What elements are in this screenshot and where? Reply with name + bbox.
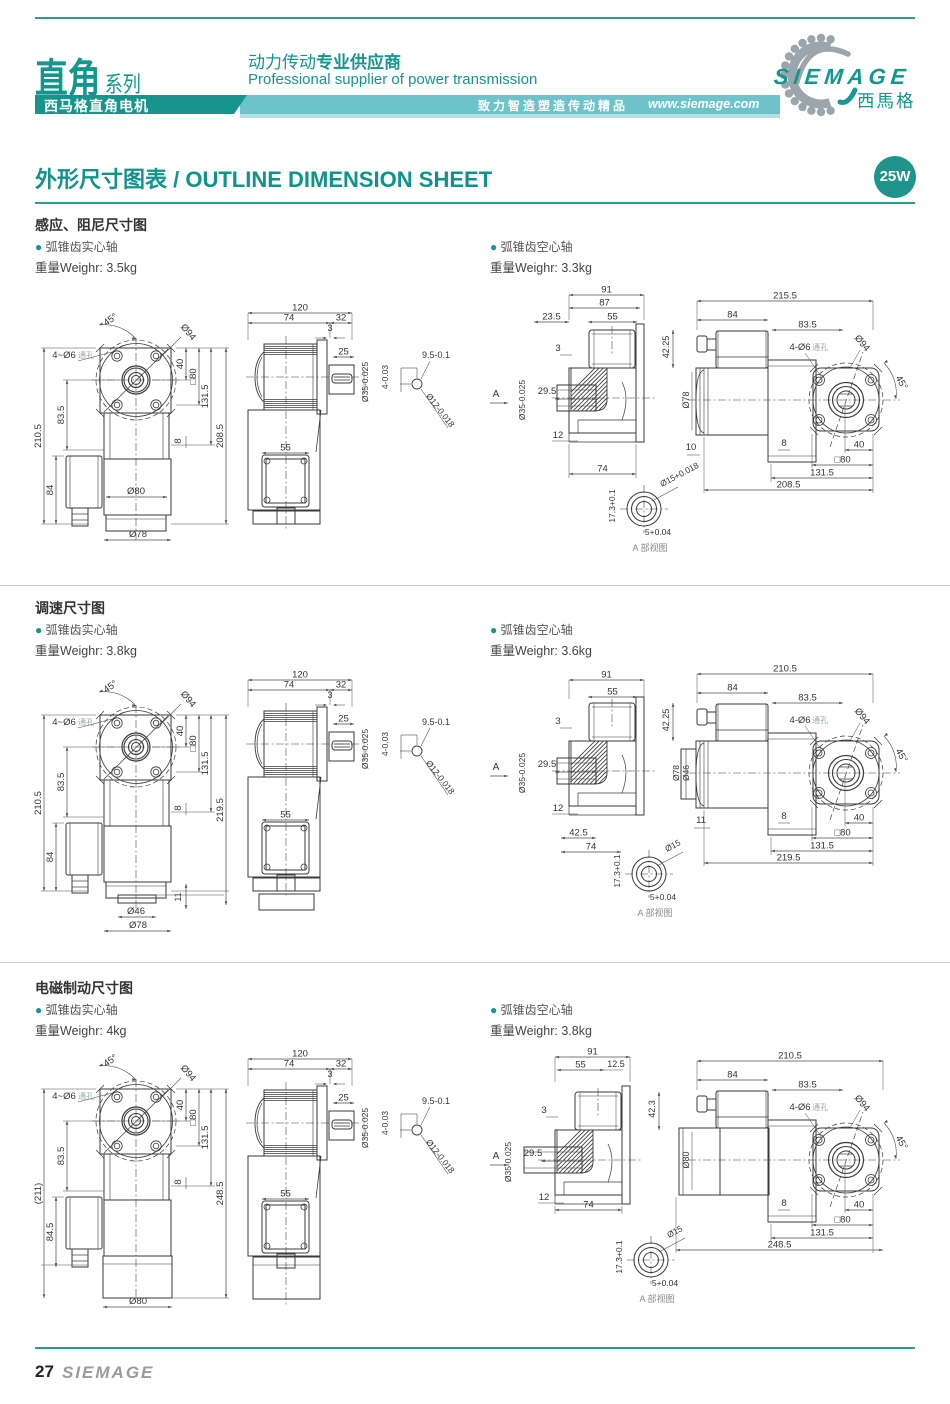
svg-text:8: 8 [173,438,184,443]
svg-text:Ø15+0.018: Ø15+0.018 [658,460,700,489]
svg-text:45°: 45° [893,1134,910,1152]
svg-text:4~Ø6: 4~Ø6 [52,1091,76,1102]
svg-text:Ø80: Ø80 [681,1151,691,1168]
svg-text:42.5: 42.5 [569,828,588,839]
svg-text:Ø35-0.025: Ø35-0.025 [517,753,527,793]
svg-text:5+0.04: 5+0.04 [645,527,672,537]
svg-text:83.5: 83.5 [798,1080,817,1091]
svg-text:55: 55 [607,312,618,323]
svg-text:Ø94: Ø94 [852,333,872,354]
svg-text:131.5: 131.5 [200,385,211,409]
svg-text:□80: □80 [834,828,850,839]
svg-text:通孔: 通孔 [78,350,94,360]
svg-text:83.5: 83.5 [798,693,817,704]
svg-text:32: 32 [336,1059,347,1070]
svg-text:A: A [493,762,500,773]
svg-text:25: 25 [338,1093,349,1104]
svg-text:通孔: 通孔 [812,1102,828,1112]
svg-text:Ø78: Ø78 [681,391,691,408]
svg-text:55: 55 [280,810,291,821]
svg-text:12: 12 [539,1192,550,1203]
svg-text:219.5: 219.5 [777,853,801,864]
svg-text:40: 40 [854,813,865,824]
svg-text:4-Ø6: 4-Ø6 [789,342,810,353]
svg-text:Ø35-0.025: Ø35-0.025 [360,729,370,769]
svg-text:8: 8 [781,438,786,449]
svg-text:Ø46: Ø46 [681,765,691,781]
svg-text:74: 74 [597,464,608,475]
svg-text:4-0.03: 4-0.03 [380,732,390,756]
svg-text:91: 91 [601,670,612,681]
svg-text:84: 84 [45,852,56,863]
svg-text:84: 84 [727,683,738,694]
svg-text:A 部视图: A 部视图 [639,1293,674,1304]
svg-text:□80: □80 [188,1109,199,1125]
svg-text:5+0.04: 5+0.04 [652,1278,679,1288]
svg-text:3: 3 [555,343,560,354]
svg-text:5+0.04: 5+0.04 [650,892,677,902]
svg-text:45°: 45° [102,1052,120,1069]
svg-text:12.5: 12.5 [607,1059,625,1069]
svg-text:45°: 45° [893,374,910,392]
svg-text:8: 8 [781,1198,786,1209]
svg-text:91: 91 [587,1047,598,1058]
svg-text:3: 3 [327,1069,332,1079]
svg-text:□80: □80 [188,735,199,751]
svg-text:4-0.03: 4-0.03 [380,365,390,389]
svg-text:91: 91 [601,285,612,296]
svg-text:83.5: 83.5 [56,406,67,425]
svg-text:17.3+0.1: 17.3+0.1 [612,854,622,888]
svg-text:210.5: 210.5 [33,424,44,448]
svg-text:84: 84 [45,485,56,496]
svg-text:Ø15: Ø15 [663,837,682,854]
svg-text:Ø94: Ø94 [178,322,198,343]
svg-text:11: 11 [696,815,706,826]
svg-text:74: 74 [583,1200,594,1211]
svg-text:55: 55 [280,1189,291,1200]
svg-text:42.25: 42.25 [661,709,671,732]
svg-text:9.5-0.1: 9.5-0.1 [422,1096,450,1106]
svg-text:Ø94: Ø94 [178,689,198,710]
svg-text:74: 74 [586,842,597,853]
svg-text:Ø94: Ø94 [178,1063,198,1084]
svg-text:A: A [493,389,500,400]
svg-text:208.5: 208.5 [215,424,226,448]
svg-text:Ø78: Ø78 [671,765,681,781]
svg-text:通孔: 通孔 [812,342,828,352]
svg-text:131.5: 131.5 [810,841,834,852]
svg-text:55: 55 [280,443,291,454]
svg-text:Ø80: Ø80 [129,1296,147,1307]
svg-text:□80: □80 [188,368,199,384]
svg-text:55: 55 [607,687,618,698]
svg-text:210.5: 210.5 [33,791,44,815]
svg-text:4-Ø6: 4-Ø6 [789,1102,810,1113]
svg-text:40: 40 [854,440,865,451]
svg-text:25: 25 [338,714,349,725]
svg-text:Ø35-0.025: Ø35-0.025 [503,1142,513,1182]
svg-text:4~Ø6: 4~Ø6 [52,717,76,728]
svg-text:4-Ø6: 4-Ø6 [789,715,810,726]
svg-text:120: 120 [292,1049,308,1060]
svg-text:10: 10 [686,442,697,453]
svg-text:□80: □80 [834,1215,850,1226]
svg-text:Ø94: Ø94 [852,1093,872,1114]
svg-text:12: 12 [553,430,564,441]
svg-text:3: 3 [327,323,332,333]
svg-text:29.5: 29.5 [538,386,557,397]
svg-text:84.5: 84.5 [45,1223,56,1242]
svg-text:17.3+0.1: 17.3+0.1 [614,1240,624,1274]
svg-text:Ø35-0.025: Ø35-0.025 [517,380,527,420]
svg-text:9.5-0.1: 9.5-0.1 [422,350,450,360]
svg-text:8: 8 [173,1179,184,1184]
svg-text:83.5: 83.5 [56,1147,67,1166]
svg-text:3: 3 [541,1105,546,1116]
svg-text:87: 87 [599,298,610,309]
svg-text:131.5: 131.5 [810,468,834,479]
svg-text:通孔: 通孔 [78,1091,94,1101]
svg-text:248.5: 248.5 [215,1182,226,1206]
svg-text:42.3: 42.3 [647,1100,657,1118]
svg-text:84: 84 [727,310,738,321]
svg-text:3: 3 [327,690,332,700]
svg-text:8: 8 [781,811,786,822]
svg-text:32: 32 [336,313,347,324]
svg-text:□80: □80 [834,455,850,466]
svg-text:9.5-0.1: 9.5-0.1 [422,717,450,727]
svg-text:40: 40 [175,359,186,370]
svg-text:45°: 45° [102,678,120,695]
svg-text:83.5: 83.5 [56,773,67,792]
svg-text:23.5: 23.5 [542,312,561,323]
svg-text:A: A [493,1151,500,1162]
svg-text:131.5: 131.5 [810,1228,834,1239]
svg-text:8: 8 [173,805,184,810]
svg-text:Ø78: Ø78 [129,529,147,540]
svg-text:40: 40 [175,1100,186,1111]
svg-text:120: 120 [292,670,308,681]
svg-text:131.5: 131.5 [200,1126,211,1150]
svg-text:Ø94: Ø94 [852,706,872,727]
svg-text:Ø78: Ø78 [129,920,147,931]
svg-text:74: 74 [284,313,295,324]
svg-text:A 部视图: A 部视图 [632,542,667,553]
svg-text:Ø35-0.025: Ø35-0.025 [360,1108,370,1148]
svg-text:Ø15: Ø15 [665,1223,684,1240]
svg-text:248.5: 248.5 [768,1240,792,1251]
svg-text:Ø35-0.025: Ø35-0.025 [360,362,370,402]
svg-text:17.3+0.1: 17.3+0.1 [607,489,617,523]
svg-text:215.5: 215.5 [773,291,797,302]
svg-text:Ø80: Ø80 [127,486,145,497]
svg-text:通孔: 通孔 [812,715,828,725]
svg-text:210.5: 210.5 [778,1051,802,1062]
svg-text:40: 40 [854,1200,865,1211]
svg-text:219.5: 219.5 [215,798,226,822]
svg-text:Ø46: Ø46 [127,906,145,917]
svg-text:25: 25 [338,347,349,358]
svg-text:83.5: 83.5 [798,320,817,331]
svg-text:Ø12-0.018: Ø12-0.018 [424,758,457,796]
svg-text:32: 32 [336,680,347,691]
svg-text:74: 74 [284,1059,295,1070]
svg-text:131.5: 131.5 [200,752,211,776]
svg-text:29.5: 29.5 [524,1148,543,1159]
svg-text:12: 12 [553,803,564,814]
svg-text:74: 74 [284,680,295,691]
svg-text:210.5: 210.5 [773,664,797,675]
svg-text:Ø12-0.018: Ø12-0.018 [424,1137,457,1175]
svg-text:29.5: 29.5 [538,759,557,770]
svg-text:3: 3 [555,716,560,727]
svg-text:A 部视图: A 部视图 [637,907,672,918]
svg-text:40: 40 [175,726,186,737]
svg-text:4~Ø6: 4~Ø6 [52,350,76,361]
svg-text:Ø12-0.018: Ø12-0.018 [424,391,457,429]
svg-text:55: 55 [575,1060,586,1071]
svg-text:(211): (211) [33,1183,44,1204]
svg-text:208.5: 208.5 [777,480,801,491]
svg-text:45°: 45° [893,747,910,765]
svg-text:42.25: 42.25 [661,336,671,359]
svg-text:11: 11 [173,892,183,901]
svg-text:通孔: 通孔 [78,717,94,727]
svg-text:84: 84 [727,1070,738,1081]
svg-text:4-0.03: 4-0.03 [380,1111,390,1135]
svg-text:45°: 45° [102,311,120,328]
svg-text:120: 120 [292,303,308,314]
